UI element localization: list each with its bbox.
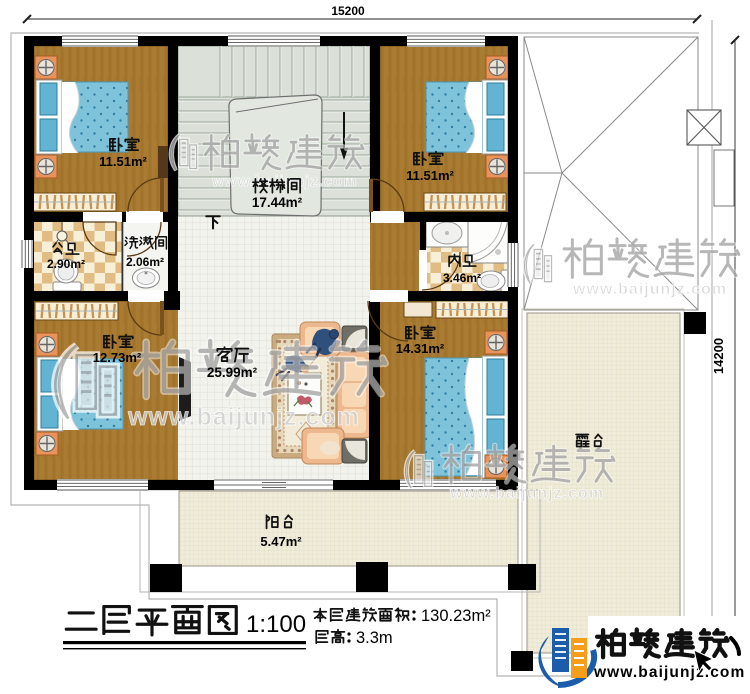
- svg-text:17.44m²: 17.44m²: [252, 195, 303, 210]
- svg-text:130.23m²: 130.23m²: [421, 607, 491, 625]
- svg-text:5.47m²: 5.47m²: [260, 534, 302, 549]
- svg-text:3.3m: 3.3m: [356, 629, 393, 647]
- svg-text:12.73m²: 12.73m²: [93, 350, 142, 365]
- svg-text:3.46m²: 3.46m²: [443, 271, 481, 285]
- svg-text:www.baijunjz.com: www.baijunjz.com: [572, 281, 727, 298]
- svg-text:25.99m²: 25.99m²: [207, 365, 258, 380]
- svg-text:www.baijunjz.com: www.baijunjz.com: [127, 403, 360, 431]
- svg-text:14.31m²: 14.31m²: [396, 341, 445, 356]
- svg-text:14200: 14200: [711, 338, 726, 374]
- svg-text:www.baijunjz.com: www.baijunjz.com: [593, 664, 745, 681]
- svg-text:11.51m²: 11.51m²: [99, 154, 147, 169]
- svg-text:2.90m²: 2.90m²: [47, 257, 85, 271]
- svg-text:2.06m²: 2.06m²: [126, 255, 164, 269]
- svg-text:www.baijunjz.com: www.baijunjz.com: [449, 485, 604, 502]
- svg-text:11.51m²: 11.51m²: [406, 168, 454, 183]
- svg-text:15200: 15200: [331, 4, 365, 18]
- svg-text:1:100: 1:100: [246, 611, 306, 638]
